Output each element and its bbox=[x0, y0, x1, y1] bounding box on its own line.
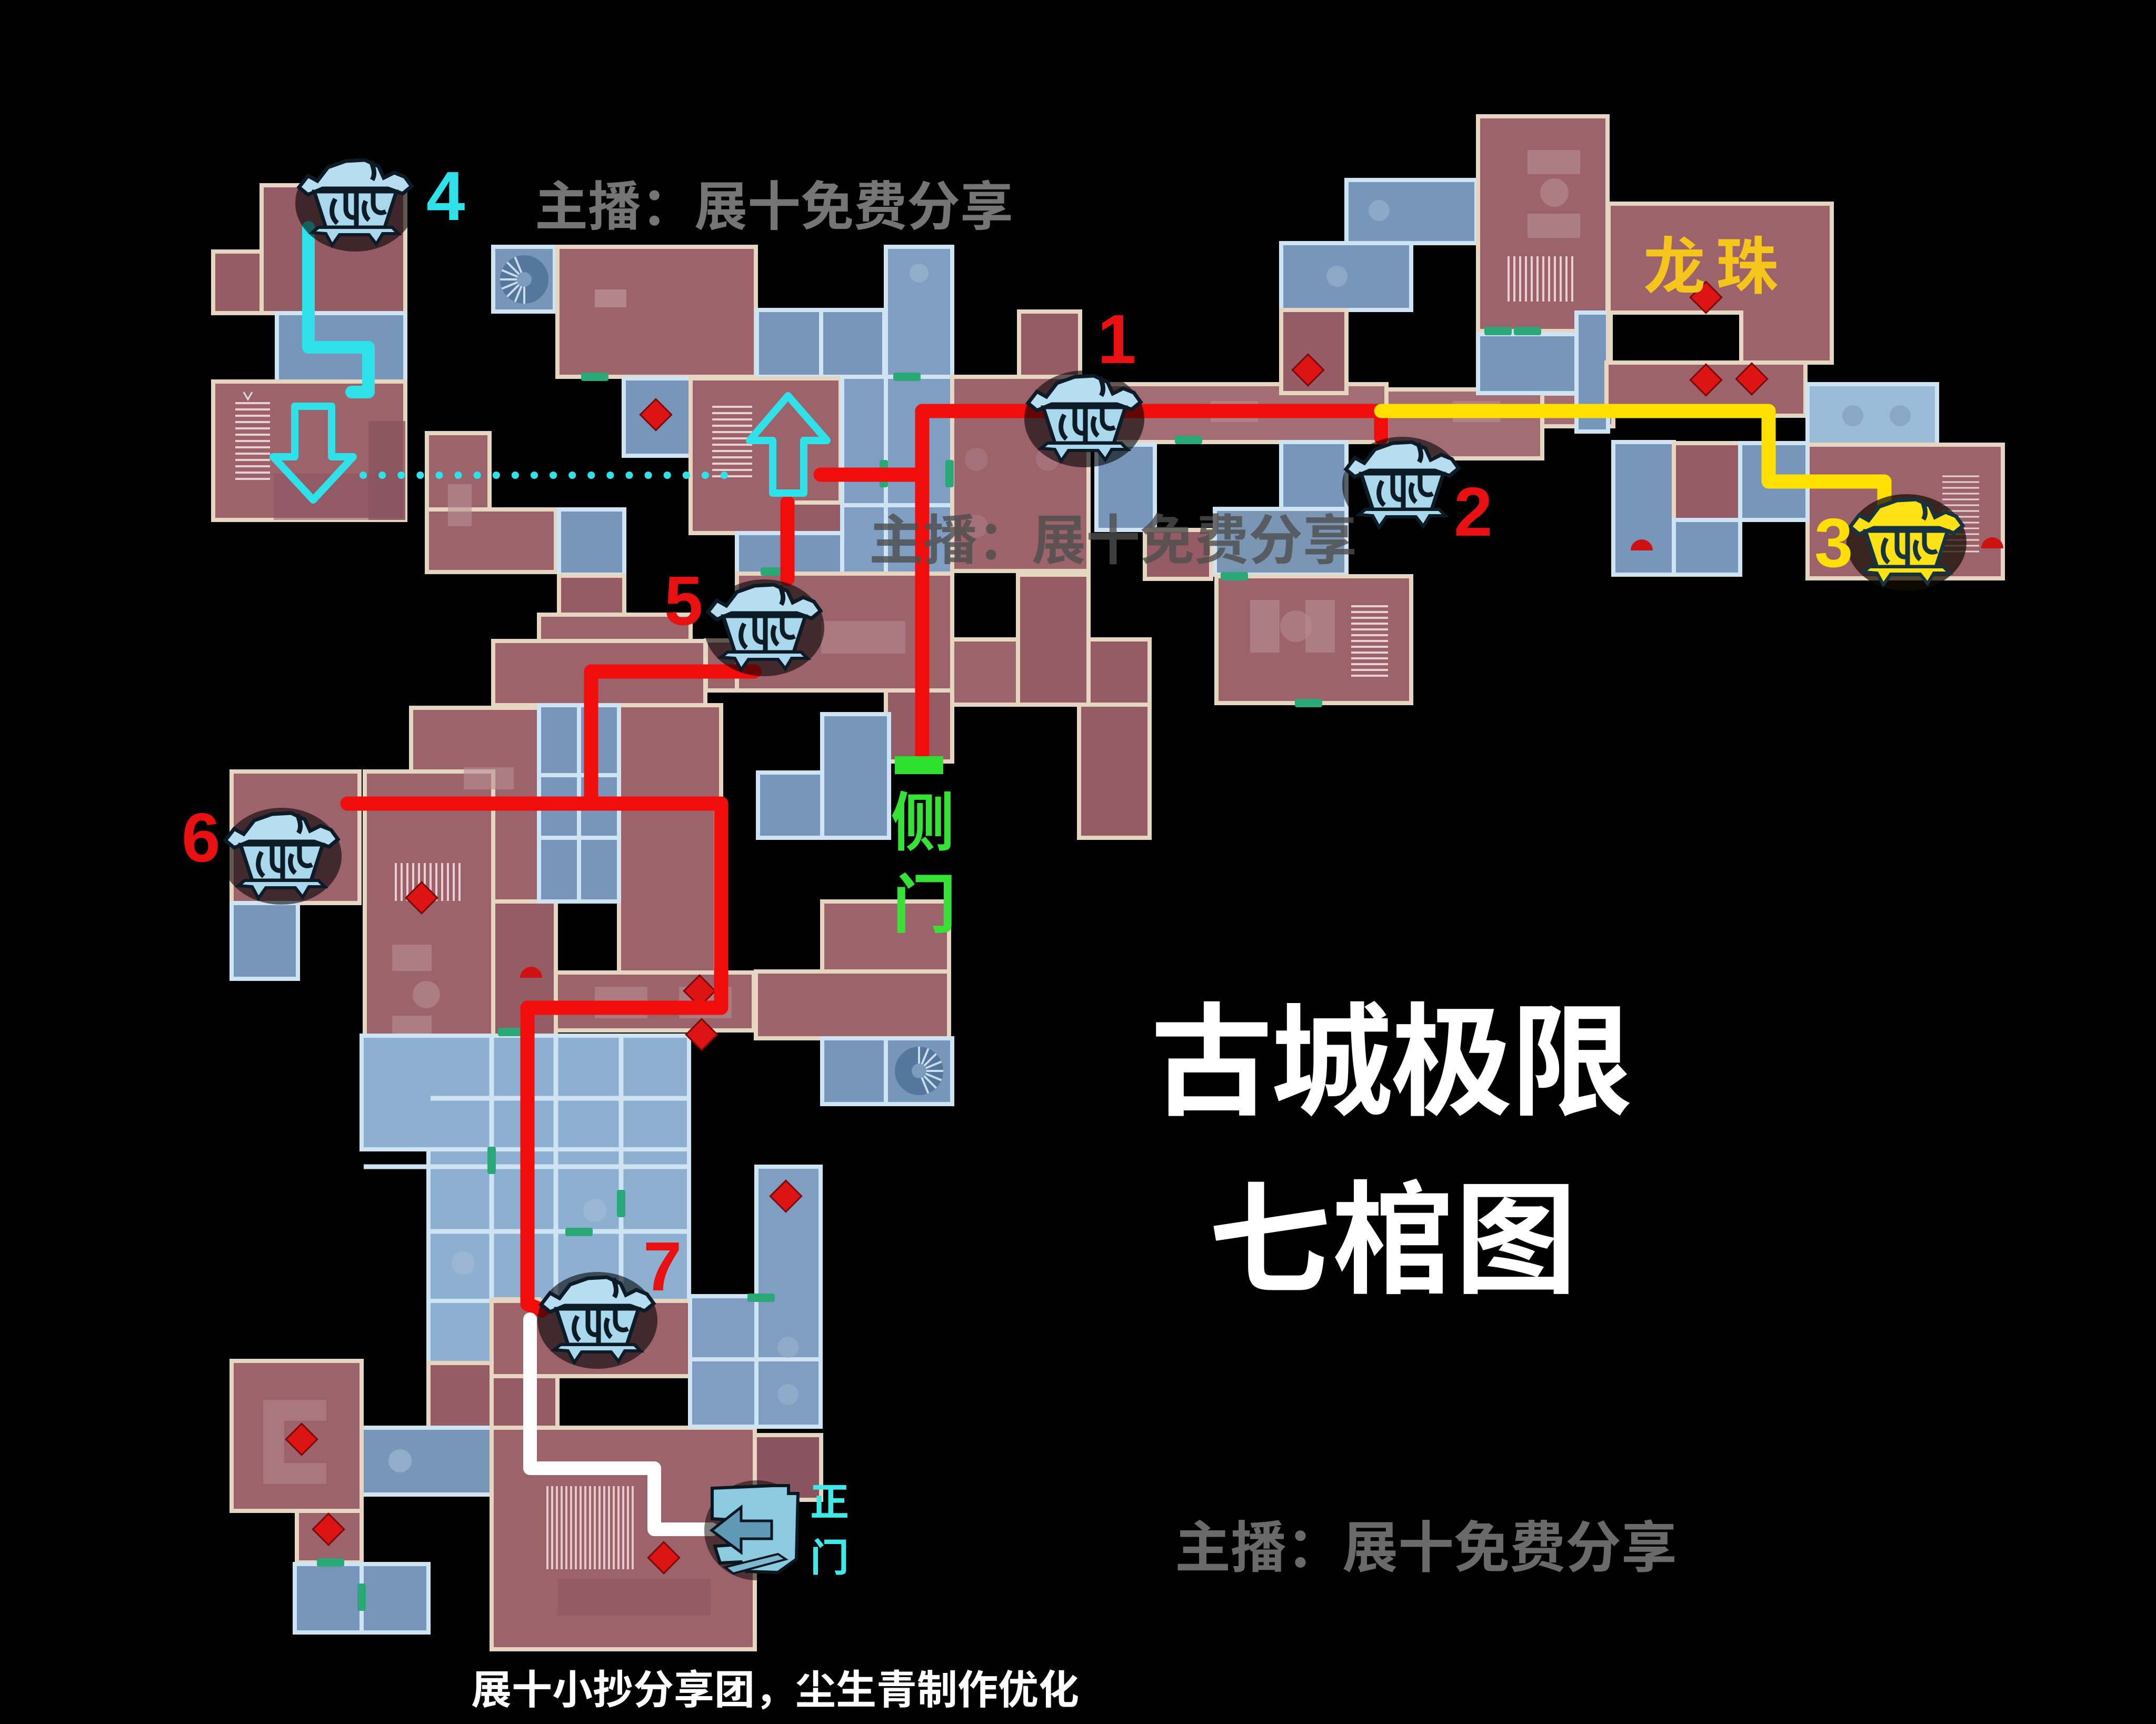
svg-text:6: 6 bbox=[182, 799, 220, 876]
svg-text:1: 1 bbox=[1097, 300, 1136, 378]
svg-text:7: 7 bbox=[643, 1228, 682, 1305]
svg-text:2: 2 bbox=[1454, 473, 1492, 550]
svg-text:5: 5 bbox=[664, 562, 703, 639]
svg-text:3: 3 bbox=[1814, 504, 1853, 582]
svg-text:4: 4 bbox=[426, 157, 465, 235]
